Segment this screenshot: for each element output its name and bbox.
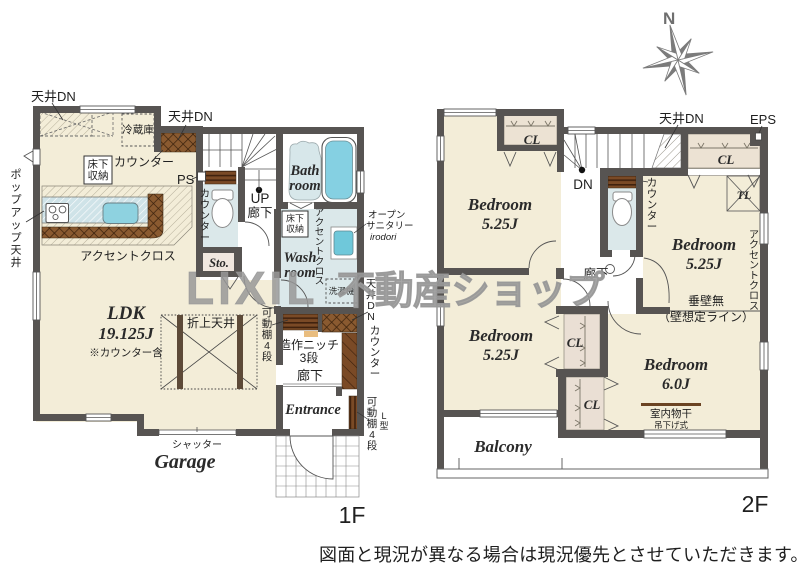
svg-text:Bedroom: Bedroom xyxy=(467,195,532,214)
svg-text:CL: CL xyxy=(567,335,584,350)
svg-text:垂壁無: 垂壁無 xyxy=(688,293,724,308)
svg-text:CL: CL xyxy=(584,397,601,412)
svg-text:19.125J: 19.125J xyxy=(98,324,154,343)
svg-text:可動棚4段: 可動棚4段 xyxy=(262,307,273,363)
svg-text:※カウンター含: ※カウンター含 xyxy=(89,346,163,359)
svg-text:造作ニッチ: 造作ニッチ xyxy=(279,338,339,352)
svg-text:Garage: Garage xyxy=(154,451,215,473)
svg-text:Bedroom: Bedroom xyxy=(643,355,708,374)
svg-text:ポップアップ天井: ポップアップ天井 xyxy=(11,168,22,269)
svg-text:天井DN: 天井DN xyxy=(31,89,76,104)
svg-text:Bedroom: Bedroom xyxy=(468,326,533,345)
svg-text:UP: UP xyxy=(251,191,270,206)
svg-text:5.25J: 5.25J xyxy=(482,216,519,233)
svg-text:irodori: irodori xyxy=(370,232,397,243)
svg-text:N: N xyxy=(663,9,675,28)
svg-text:5.25J: 5.25J xyxy=(483,347,520,364)
svg-text:廊下: 廊下 xyxy=(297,368,323,383)
svg-text:カウンター: カウンター xyxy=(647,177,658,233)
svg-text:Bedroom: Bedroom xyxy=(671,235,736,254)
svg-text:天井DN: 天井DN xyxy=(168,109,213,124)
svg-text:収納: 収納 xyxy=(88,169,109,182)
svg-text:カウンター: カウンター xyxy=(370,325,381,380)
svg-text:（壁想定ライン）: （壁想定ライン） xyxy=(658,309,754,324)
svg-text:図面と現況が異なる場合は現況優先とさせていただきます。: 図面と現況が異なる場合は現況優先とさせていただきます。 xyxy=(319,545,800,565)
svg-text:TL: TL xyxy=(737,188,752,202)
svg-text:LDK: LDK xyxy=(106,303,146,324)
svg-text:Balcony: Balcony xyxy=(473,437,532,456)
svg-text:Bath: Bath xyxy=(289,163,319,179)
svg-text:室内物干: 室内物干 xyxy=(650,407,692,420)
svg-text:アクセントクロス: アクセントクロス xyxy=(80,249,175,263)
svg-text:EPS: EPS xyxy=(750,112,776,127)
svg-text:CL: CL xyxy=(524,132,541,147)
svg-text:DN: DN xyxy=(573,177,593,192)
svg-text:可動棚4段: 可動棚4段 xyxy=(367,396,378,452)
svg-text:吊下げ式: 吊下げ式 xyxy=(654,420,689,430)
svg-text:廊下: 廊下 xyxy=(247,205,272,220)
svg-text:LIXIL不動産ショップ: LIXIL不動産ショップ xyxy=(186,262,605,314)
svg-text:CL: CL xyxy=(718,152,735,167)
svg-text:床下: 床下 xyxy=(286,213,304,224)
svg-text:カウンター: カウンター xyxy=(200,188,210,244)
svg-text:サニタリー: サニタリー xyxy=(366,221,414,232)
svg-text:room: room xyxy=(289,178,320,194)
svg-text:床下: 床下 xyxy=(88,158,109,171)
svg-text:カウンター: カウンター xyxy=(114,155,174,169)
svg-text:アクセントクロス: アクセントクロス xyxy=(749,230,759,312)
svg-text:2F: 2F xyxy=(742,491,769,517)
svg-text:6.0J: 6.0J xyxy=(662,376,691,393)
svg-text:オープン: オープン xyxy=(368,210,405,221)
svg-text:PS: PS xyxy=(177,172,195,187)
svg-text:シャッター: シャッター xyxy=(172,439,222,451)
svg-text:3段: 3段 xyxy=(300,350,319,365)
svg-text:折上天井: 折上天井 xyxy=(187,315,235,330)
svg-text:5.25J: 5.25J xyxy=(686,256,723,273)
svg-text:天井DN: 天井DN xyxy=(659,111,704,126)
svg-text:収納: 収納 xyxy=(286,223,304,234)
svg-text:Entrance: Entrance xyxy=(284,402,341,418)
svg-text:1F: 1F xyxy=(339,502,366,528)
svg-text:冷蔵庫: 冷蔵庫 xyxy=(122,123,154,136)
